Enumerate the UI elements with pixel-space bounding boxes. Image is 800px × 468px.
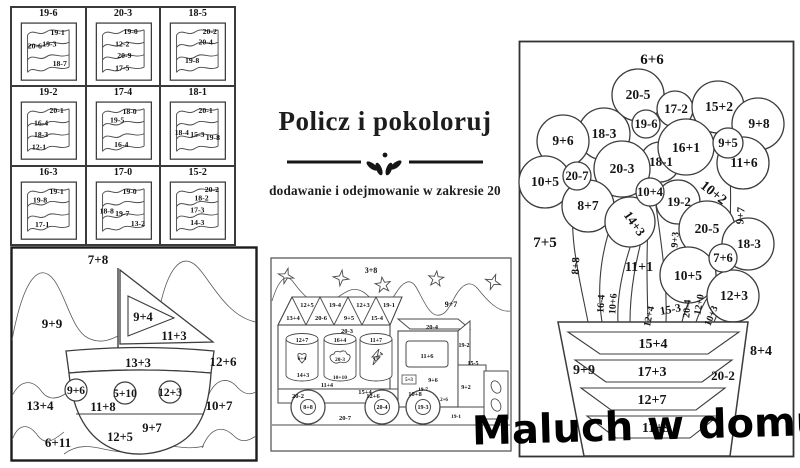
flag-cell: 17-019-018-819-713-2 xyxy=(86,166,161,245)
math-problem-label: 19-3 xyxy=(42,39,56,48)
math-problem-label: 19-7 xyxy=(115,208,129,217)
math-problem-label: 12+7 xyxy=(296,338,308,344)
math-problem-label: 17-2 xyxy=(664,101,688,116)
math-problem-label: 20-7 xyxy=(339,415,352,422)
flag-cell-header: 20-3 xyxy=(87,8,160,20)
math-problem-label: 12+3 xyxy=(158,387,182,399)
math-problem-label: 11+4 xyxy=(321,383,333,389)
flag-cell-header: 15-2 xyxy=(161,167,234,179)
math-problem-label: 20-4 xyxy=(377,405,388,411)
math-problem-label: 5+10 xyxy=(113,388,137,400)
math-problem-label: 9+9 xyxy=(573,363,595,378)
math-problem-label: 9+7 xyxy=(445,300,458,309)
math-problem-label: 17+3 xyxy=(638,365,667,380)
math-problem-label: 20-9 xyxy=(117,51,131,60)
flag-cell: 18-120-118-415-319-8 xyxy=(160,86,235,165)
math-problem-label: 19-1 xyxy=(451,414,461,420)
math-problem-label: 20-5 xyxy=(695,221,720,236)
math-problem-label: 18-2 xyxy=(195,193,209,202)
flag-cell-header: 19-2 xyxy=(12,87,85,99)
flag-drawing: 20-116-418-312-1 xyxy=(12,99,85,164)
math-problem-label: 19-1 xyxy=(51,28,65,37)
math-problem-label: 10+5 xyxy=(531,174,559,189)
flag-cell-header: 19-6 xyxy=(12,8,85,20)
star-icon xyxy=(332,269,350,287)
math-problem-label: 17-3 xyxy=(191,205,205,214)
math-problem-label: 18-8 xyxy=(99,206,113,215)
math-problem-label: 15+2 xyxy=(705,99,733,114)
math-problem-label: 16+4 xyxy=(334,338,346,344)
math-problem-label: 20-4 xyxy=(199,37,213,46)
math-problem-label: 18-3 xyxy=(737,236,761,251)
math-problem-label: 19-2 xyxy=(667,194,691,209)
math-problem-label: 8+8 xyxy=(303,405,312,411)
math-problem-label: 20-1 xyxy=(50,106,64,115)
math-problem-label: 20-4 xyxy=(426,324,439,331)
math-problem-label: 2+6 xyxy=(440,398,448,403)
math-problem-label: 19-7 xyxy=(418,387,428,393)
math-problem-label: 19-5 xyxy=(110,116,124,125)
math-problem-label: 13+3 xyxy=(125,356,151,370)
math-problem-label: 11+7 xyxy=(370,338,382,344)
math-problem-label: 20-2 xyxy=(711,368,735,383)
divider-ornament-icon xyxy=(285,147,485,179)
boat-worksheet: 7+89+99+411+312+613+39+65+1012+313+410+7… xyxy=(10,246,258,462)
math-problem-label: 6+11 xyxy=(45,435,71,450)
math-problem-label: 18-7 xyxy=(53,59,67,68)
math-problem-label: 14-3 xyxy=(191,218,205,227)
math-problem-label: 7+6 xyxy=(713,251,733,265)
math-problem-label: 6+4 xyxy=(298,356,307,362)
math-problem-label: 15-3 xyxy=(191,130,205,139)
flag-cell: 16-319-119-817-1 xyxy=(11,166,86,245)
math-problem-label: 18-3 xyxy=(34,130,48,139)
flag-cell: 19-220-116-418-312-1 xyxy=(11,86,86,165)
math-problem-label: 19-8 xyxy=(206,133,220,142)
math-problem-label: 12+5 xyxy=(300,302,314,309)
math-problem-label: 12-1 xyxy=(32,143,46,152)
flag-cell-header: 17-4 xyxy=(87,87,160,99)
flag-cell: 17-418-019-516-4 xyxy=(86,86,161,165)
math-problem-label: 9+9 xyxy=(42,316,63,331)
math-problem-label: 12+6 xyxy=(210,354,237,369)
math-problem-label: 19-3 xyxy=(418,405,429,411)
math-problem-label: 9+2 xyxy=(461,385,470,391)
math-problem-label: 9+3 xyxy=(669,231,681,248)
math-problem-label: 19-1 xyxy=(50,187,64,196)
math-problem-label: 8+8 xyxy=(570,257,583,275)
flag-drawing: 20-218-217-314-3 xyxy=(161,179,234,244)
worksheet-collage: 19-619-120-619-318-720-319-012-220-917-5… xyxy=(0,0,800,468)
math-problem-label: 10+4 xyxy=(637,185,664,199)
math-problem-label: 8+4 xyxy=(750,344,772,359)
math-problem-label: 11+1 xyxy=(625,260,653,275)
math-problem-label: 12+3 xyxy=(720,288,748,303)
math-problem-label: 19-0 xyxy=(123,27,137,36)
math-problem-label: 15+4 xyxy=(639,337,668,352)
math-problem-label: 12+3 xyxy=(356,302,370,309)
math-problem-label: 20-3 xyxy=(341,328,354,335)
math-problem-label: 12-2 xyxy=(115,39,129,48)
math-problem-label: 12+5 xyxy=(107,430,133,444)
math-problem-label: 9+6 xyxy=(552,133,573,148)
math-problem-label: 9+7 xyxy=(734,206,748,225)
math-problem-label: 14+3 xyxy=(297,373,309,379)
math-problem-label: 20-7 xyxy=(566,169,589,183)
math-problem-label: 11+8 xyxy=(90,400,115,414)
flag-cell-header: 17-0 xyxy=(87,167,160,179)
flag-drawing: 19-012-220-917-5 xyxy=(87,20,160,85)
math-problem-label: 20-1 xyxy=(199,106,213,115)
math-problem-label: 17-5 xyxy=(115,63,129,72)
page-title: Policz i pokoloruj xyxy=(252,106,518,137)
math-problem-label: 11+6 xyxy=(420,353,434,360)
math-problem-label: 20-2 xyxy=(292,393,304,400)
math-problem-label: 7+5 xyxy=(533,235,557,251)
math-problem-label: 18-0 xyxy=(122,107,136,116)
math-problem-label: 20-4 xyxy=(681,299,694,318)
math-problem-label: 9+5 xyxy=(344,315,355,322)
math-problem-label: 9+6 xyxy=(428,378,437,384)
math-problem-label: 8+7 xyxy=(577,198,598,213)
math-problem-label: 20-3 xyxy=(335,357,345,363)
math-problem-label: 6+6 xyxy=(640,52,664,68)
math-problem-label: 15-4 xyxy=(371,315,384,322)
math-problem-label: 16+1 xyxy=(672,140,700,155)
math-problem-label: 12+0 xyxy=(692,293,706,315)
math-problem-label: 20-3 xyxy=(610,161,635,176)
math-problem-label: 20-5 xyxy=(626,87,651,102)
star-icon xyxy=(428,270,445,286)
math-problem-label: 13+4 xyxy=(27,398,54,413)
math-problem-label: 10+6 xyxy=(607,293,619,314)
stars xyxy=(276,266,503,292)
math-problem-label: 9+8 xyxy=(748,116,769,131)
math-problem-label: 9+5 xyxy=(718,136,738,150)
math-problem-label: 16-4 xyxy=(34,119,48,128)
watermark-logo: Maluch w domu xyxy=(471,399,800,454)
flag-drawing: 20-118-415-319-8 xyxy=(161,99,234,164)
title-block: Policz i pokoloruj dodawanie i odejmowan… xyxy=(252,106,518,199)
math-problem-label: 7+8 xyxy=(88,252,109,267)
math-problem-label: 3+8 xyxy=(365,266,378,275)
math-problem-label: 18-4 xyxy=(175,128,189,137)
math-problem-label: 9+7 xyxy=(142,421,162,435)
math-problem-label: 10+7 xyxy=(206,398,233,413)
math-problem-label: 18-3 xyxy=(592,126,617,141)
math-problem-label: 19-8 xyxy=(33,195,47,204)
star-icon xyxy=(276,266,296,286)
math-problem-label: 16-4 xyxy=(595,294,607,313)
math-problem-label: 10+5 xyxy=(674,268,702,283)
flag-cell-header: 18-1 xyxy=(161,87,234,99)
flag-drawing: 19-120-619-318-7 xyxy=(12,20,85,85)
flag-cell: 18-520-220-419-8 xyxy=(160,7,235,86)
math-problem-label: 16-4 xyxy=(114,141,128,150)
flower-worksheet: 6+620-517-215+29+818-319-616+19+59+611+6… xyxy=(518,40,795,458)
math-problem-label: 15-3 xyxy=(659,302,682,318)
star-icon xyxy=(374,276,391,292)
flag-drawing: 18-019-516-4 xyxy=(87,99,160,164)
math-problem-label: 10+10 xyxy=(333,375,347,381)
math-problem-label: 20-6 xyxy=(315,315,328,322)
flag-cell-header: 16-3 xyxy=(12,167,85,179)
math-problem-label: 13-2 xyxy=(130,219,144,228)
math-problem-label: 20-2 xyxy=(203,27,217,36)
flag-cell: 20-319-012-220-917-5 xyxy=(86,7,161,86)
math-problem-label: 20-6 xyxy=(28,42,42,51)
math-problem-label: 19-0 xyxy=(122,187,136,196)
math-problem-label: 18-1 xyxy=(649,154,673,169)
flag-drawing: 19-018-819-713-2 xyxy=(87,179,160,244)
math-problem-label: 17-1 xyxy=(35,220,49,229)
math-problem-label: 12+6 xyxy=(366,393,380,400)
flag-cell: 15-220-218-217-314-3 xyxy=(160,166,235,245)
math-problem-label: 19-1 xyxy=(383,302,395,309)
math-problem-label: 9+4 xyxy=(133,310,153,324)
page-subtitle: dodawanie i odejmowanie w zakresie 20 xyxy=(252,183,518,199)
math-problem-label: 13+4 xyxy=(286,315,300,322)
star-icon xyxy=(483,272,504,293)
math-problem-label: 19-4 xyxy=(329,302,342,309)
math-problem-label: 19-8 xyxy=(185,56,199,65)
math-problem-label: 11+3 xyxy=(161,329,186,343)
flag-drawing: 19-119-817-1 xyxy=(12,179,85,244)
math-problem-label: 11+6 xyxy=(730,155,757,170)
math-problem-label: 15-5 xyxy=(468,361,479,367)
math-problem-label: 5+3 xyxy=(405,378,413,383)
math-problem-label: 19-2 xyxy=(459,343,470,349)
flag-cell: 19-619-120-619-318-7 xyxy=(11,7,86,86)
flags-grid-panel: 19-619-120-619-318-720-319-012-220-917-5… xyxy=(10,6,236,246)
flag-drawing: 20-220-419-8 xyxy=(161,20,234,85)
math-problem-label: 9+6 xyxy=(67,385,85,397)
flag-cell-header: 18-5 xyxy=(161,8,234,20)
math-problem-label: 19-6 xyxy=(635,117,658,131)
